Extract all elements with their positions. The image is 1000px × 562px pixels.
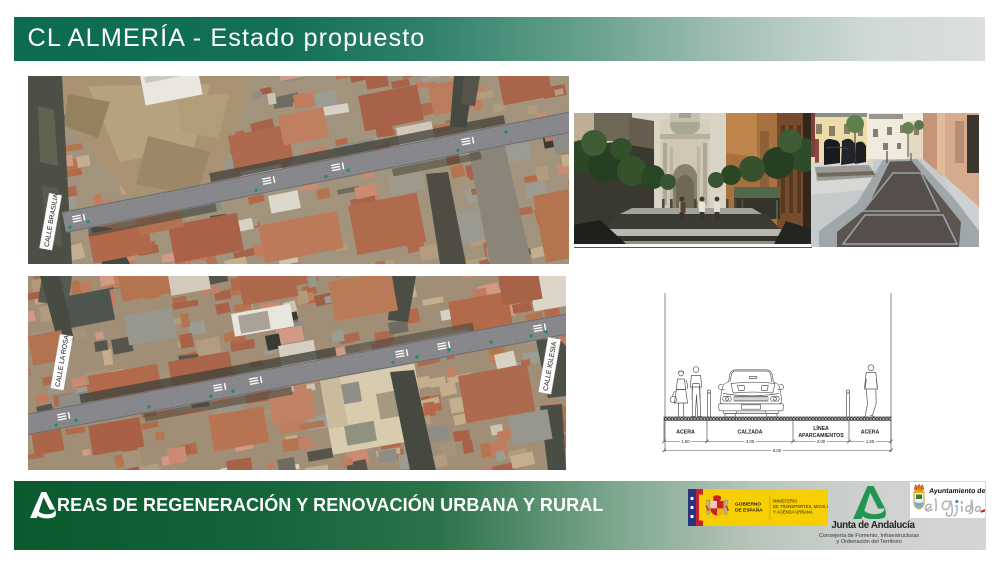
svg-text:Ayuntamiento de: Ayuntamiento de: [929, 488, 985, 495]
svg-text:GOBIERNO: GOBIERNO: [735, 502, 761, 508]
svg-text:MINISTERIO: MINISTERIO: [773, 499, 798, 504]
svg-text:3.00: 3.00: [746, 439, 755, 444]
svg-text:8.00: 8.00: [773, 448, 782, 453]
svg-text:DE TRANSPORTES, MOVILIDAD: DE TRANSPORTES, MOVILIDAD: [773, 504, 828, 509]
svg-text:ACERA: ACERA: [861, 430, 880, 436]
svg-text:Y AGENDA URBANA: Y AGENDA URBANA: [773, 510, 813, 515]
svg-text:1.50: 1.50: [866, 439, 875, 444]
svg-text:ACERA: ACERA: [676, 430, 695, 436]
svg-text:LÍNEA: LÍNEA: [813, 424, 829, 432]
svg-text:CALZADA: CALZADA: [737, 430, 762, 436]
svg-text:2.00: 2.00: [817, 439, 826, 444]
svg-text:1.50: 1.50: [681, 439, 690, 444]
svg-text:DE ESPAÑA: DE ESPAÑA: [735, 507, 763, 514]
